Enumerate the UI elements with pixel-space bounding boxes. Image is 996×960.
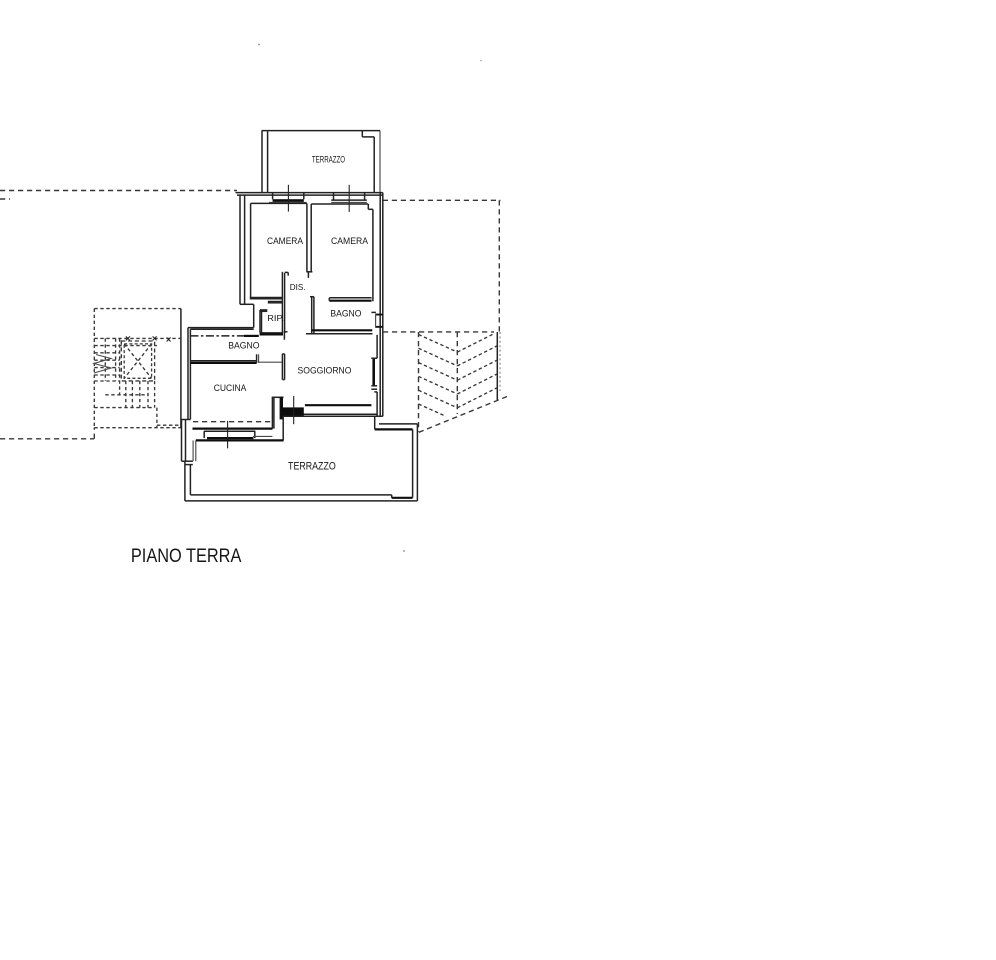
svg-text:TERRAZZO: TERRAZZO (288, 460, 336, 472)
svg-text:TERRAZZO: TERRAZZO (312, 155, 345, 165)
svg-text:PIANO TERRA: PIANO TERRA (131, 545, 242, 567)
svg-text:SOGGIORNO: SOGGIORNO (298, 366, 352, 377)
svg-text:BAGNO: BAGNO (330, 309, 361, 320)
svg-text:DIS.: DIS. (290, 282, 306, 292)
svg-text:BAGNO: BAGNO (228, 341, 259, 352)
svg-text:CAMERA: CAMERA (267, 236, 304, 247)
svg-text:RIP.: RIP. (267, 313, 284, 323)
svg-text:CAMERA: CAMERA (331, 236, 369, 247)
svg-text:CUCINA: CUCINA (214, 383, 247, 394)
